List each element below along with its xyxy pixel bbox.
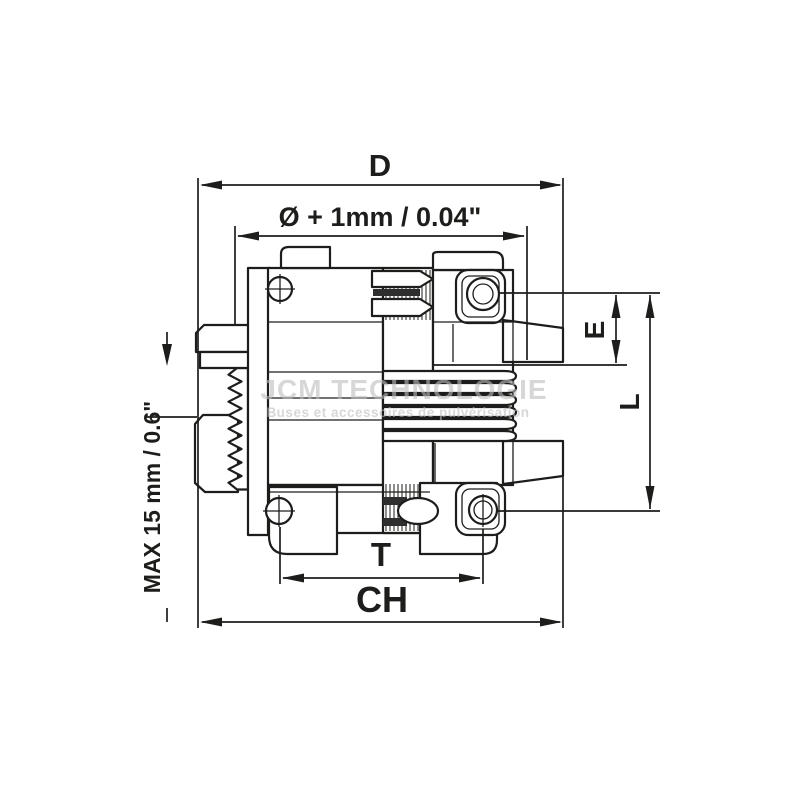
dim-l-arrow-up <box>646 295 655 318</box>
dim-ch-arrow-left <box>200 618 222 627</box>
dim-max-label: MAX 15 mm / 0.6" <box>139 401 165 593</box>
ratchet-tooth-top <box>372 271 433 287</box>
dim-ch-arrow-right <box>540 618 562 627</box>
dim-t-arrow-left <box>282 574 304 583</box>
dim-diameter-label: Ø + 1mm / 0.04" <box>279 202 482 232</box>
dimension-max: MAX 15 mm / 0.6" <box>139 332 197 622</box>
dim-t-arrow-right <box>459 574 481 583</box>
dimension-ch: CH <box>200 579 562 627</box>
dim-t-label: T <box>371 536 391 573</box>
dim-e-arrow-up <box>612 295 621 318</box>
dim-l-arrow-down <box>646 486 655 509</box>
top-lug-hole <box>467 278 499 310</box>
dim-l-label: L <box>614 393 645 410</box>
watermark-subtitle: Buses et accessoires de pulvérisation <box>266 405 529 420</box>
dim-d-arrow-right <box>540 181 562 190</box>
hex-collar-top <box>503 320 563 362</box>
dim-e-arrow-down <box>612 340 621 363</box>
ratchet-bar <box>373 289 420 296</box>
top-cap-right <box>433 252 503 270</box>
ratchet-tooth-bottom <box>372 299 433 316</box>
dim-d-label: D <box>369 148 391 183</box>
top-cap-left <box>281 247 330 268</box>
dim-diameter-arrow-left <box>237 232 259 241</box>
dim-e-label: E <box>579 321 610 340</box>
flange-washer-mid <box>200 352 250 368</box>
flange-washer-top <box>196 325 250 352</box>
slot-ellipse <box>398 498 438 524</box>
dim-max-arrow-down <box>162 344 172 366</box>
technical-drawing-page: D Ø + 1mm / 0.04" E L T CH <box>0 0 800 800</box>
dim-d-arrow-left <box>200 181 222 190</box>
watermark: JCM TECHNOLOGIE Buses et accessoires de … <box>260 374 547 420</box>
dim-ch-label: CH <box>356 579 408 620</box>
dim-diameter-arrow-right <box>503 232 525 241</box>
drawing-canvas: D Ø + 1mm / 0.04" E L T CH <box>0 0 800 800</box>
watermark-title: JCM TECHNOLOGIE <box>260 374 547 405</box>
hex-collar-bottom <box>503 441 563 484</box>
thread-zigzag <box>229 368 249 490</box>
